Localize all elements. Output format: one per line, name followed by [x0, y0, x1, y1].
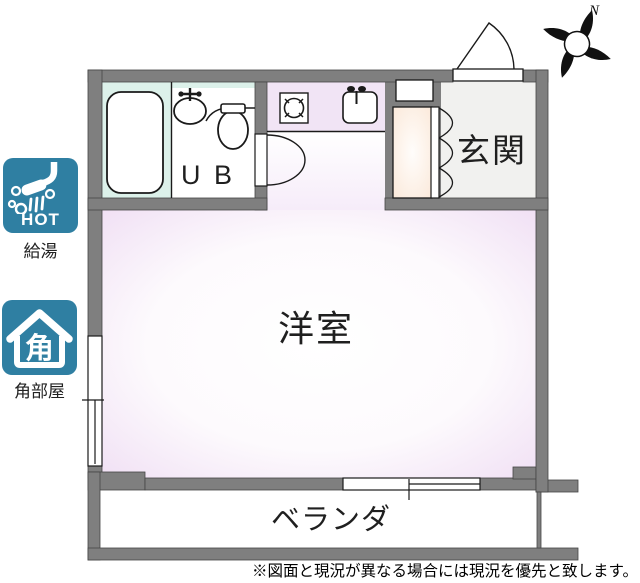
closet-door-panel	[431, 107, 439, 198]
bathtub-icon	[107, 92, 163, 193]
wall-ub-right-upper	[255, 82, 267, 134]
west-sliding-window	[82, 336, 104, 466]
washbasin-icon	[174, 98, 206, 124]
wall-right	[536, 70, 548, 492]
wall-veranda-left	[88, 472, 100, 560]
entrance-door-threshold	[453, 69, 523, 81]
bath-door-leaf	[255, 134, 267, 186]
wall-ub-bottom	[88, 198, 267, 210]
hot-badge-text: HOT	[3, 211, 78, 228]
floorplan-drawing: U B	[0, 0, 640, 583]
wall-step-right	[513, 467, 536, 479]
shower-hot-icon	[3, 158, 78, 214]
closet	[393, 107, 432, 198]
kitchen-sink-icon	[343, 86, 377, 123]
wall-veranda-right-thin	[537, 492, 541, 548]
wall-bottom-right	[480, 478, 536, 490]
toilet-icon	[218, 104, 248, 149]
corner-room-badge: 角	[2, 300, 77, 375]
hot-water-badge: HOT	[3, 158, 78, 233]
wall-bottom-mid	[145, 478, 343, 490]
unit-bath-label: U B	[181, 160, 235, 190]
veranda-label: ベランダ	[271, 503, 391, 536]
stove-icon	[280, 93, 308, 123]
compass-north-label: N	[588, 3, 600, 19]
corner-room-badge-char: 角	[25, 332, 54, 365]
floorplan-page: U B	[0, 0, 640, 583]
disclaimer-text: ※図面と現況が異なる場合には現況を優先と致します。	[252, 559, 638, 581]
kitchen-floor	[267, 132, 385, 210]
western-room-label: 洋室	[278, 308, 354, 349]
corner-room-house-icon: 角	[2, 300, 77, 375]
wall-entrance-bottom	[385, 198, 548, 210]
entrance-door-swing-arc	[457, 23, 514, 69]
corner-room-label: 角部屋	[0, 377, 82, 402]
hot-water-label: 給湯	[0, 237, 83, 262]
entrance-label: 玄関	[457, 132, 527, 169]
storage-box	[396, 80, 433, 101]
